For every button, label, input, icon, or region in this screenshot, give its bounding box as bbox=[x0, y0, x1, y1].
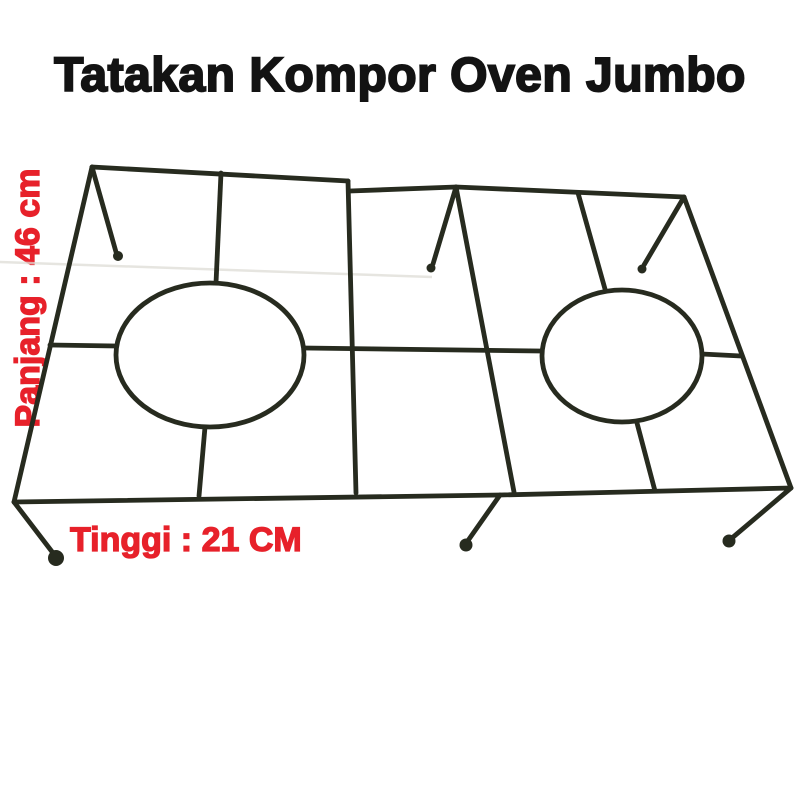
product-listing-image: Tatakan Kompor Oven Jumbo Panjang : 46 c… bbox=[0, 0, 800, 800]
foot-cap bbox=[723, 535, 736, 548]
foot-cap bbox=[460, 539, 473, 552]
right-burner-ring bbox=[542, 290, 702, 422]
right-burner bbox=[542, 193, 741, 491]
foot-cap bbox=[427, 264, 436, 273]
left-burner-ring bbox=[116, 283, 304, 427]
foot-cap bbox=[638, 265, 647, 274]
foot-cap bbox=[48, 550, 64, 566]
left-burner bbox=[50, 173, 540, 496]
stove-rack-drawing bbox=[0, 0, 800, 800]
foot-cap bbox=[113, 251, 123, 261]
